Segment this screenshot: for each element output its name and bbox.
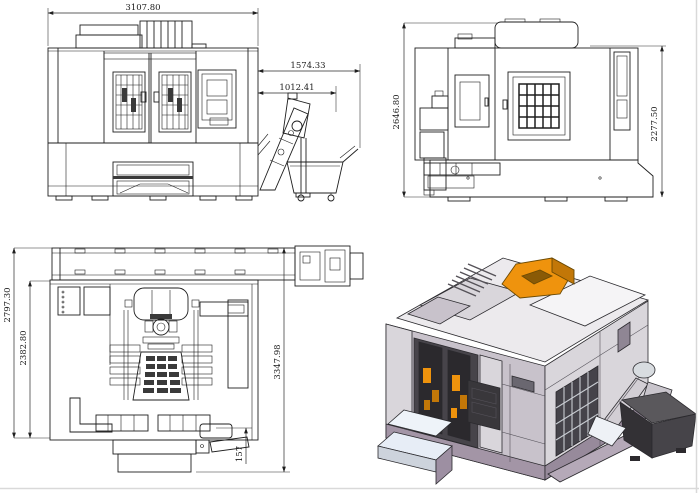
- plan-conveyor-channel: [52, 248, 295, 280]
- front-left-door-window: [113, 72, 145, 132]
- front-dim-conveyor-overall: 1574.33: [258, 61, 360, 148]
- side-grille-window: [503, 72, 570, 140]
- isometric-view: [378, 258, 696, 484]
- iso-pendant: [468, 380, 500, 430]
- front-dim-overall-width: 3107.80: [48, 3, 258, 46]
- dim-label-overall-height: 2646.80: [392, 94, 402, 129]
- front-right-door-window: [159, 72, 191, 132]
- front-view: 3107.80: [48, 3, 360, 201]
- front-coolant-tank: [113, 162, 193, 196]
- front-chip-cart: [287, 146, 358, 201]
- dim-label-overall-width: 3107.80: [125, 3, 160, 13]
- front-chip-conveyor: [258, 93, 310, 197]
- dim-label-conveyor-discharge: 1012.41: [279, 83, 314, 93]
- front-cabinet-panel: [198, 70, 236, 128]
- dim-label-overall-depth: 2797.30: [3, 287, 13, 322]
- side-base: [430, 160, 653, 201]
- front-doors: [104, 51, 196, 143]
- dim-label-conveyor-overall: 1574.33: [290, 61, 325, 71]
- front-roof: [76, 21, 206, 48]
- drawing-canvas: 3107.80: [0, 0, 699, 493]
- dim-label-overall-length: 3347.98: [273, 344, 283, 379]
- plan-dim-body-depth: 2382.80: [19, 281, 50, 438]
- side-dim-body-height: 2277.50: [590, 46, 666, 197]
- side-roof-cab: [455, 19, 578, 48]
- machine-drawing-sheet: 3107.80: [0, 0, 699, 493]
- side-machine-body: [415, 48, 638, 160]
- plan-bottom-protrusion: [113, 440, 196, 472]
- plan-machine-body: [50, 280, 258, 453]
- plan-dim-offset: 157: [216, 428, 252, 464]
- plan-view: 2797.30 2382.80 3347.98 157: [3, 246, 363, 472]
- side-view: 2646.80 2277.50: [392, 19, 666, 201]
- plan-conveyor-discharge: [295, 246, 363, 286]
- dim-label-body-height: 2277.50: [650, 106, 660, 141]
- side-dim-overall-height: 2646.80: [392, 23, 497, 197]
- dim-label-body-depth: 2382.80: [19, 330, 29, 365]
